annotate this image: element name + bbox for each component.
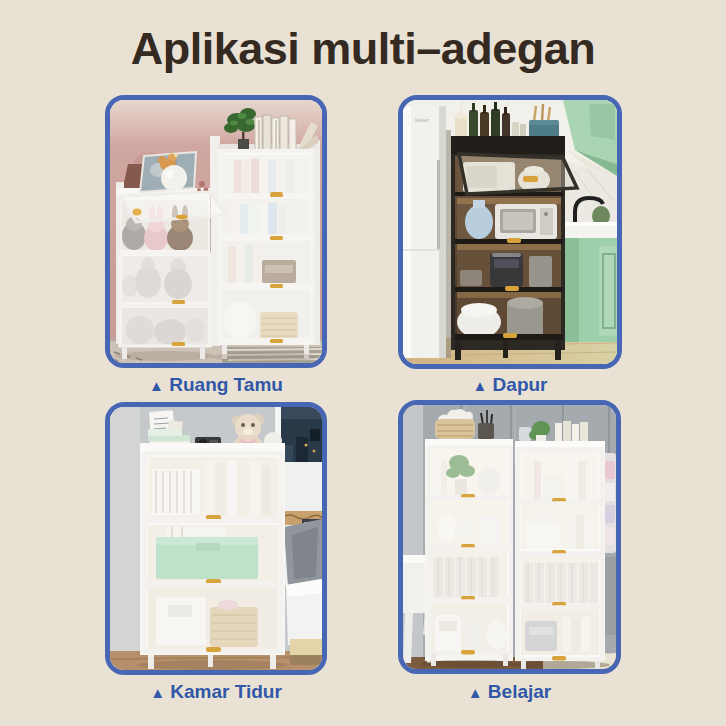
svg-text:Haier: Haier [415, 117, 429, 123]
